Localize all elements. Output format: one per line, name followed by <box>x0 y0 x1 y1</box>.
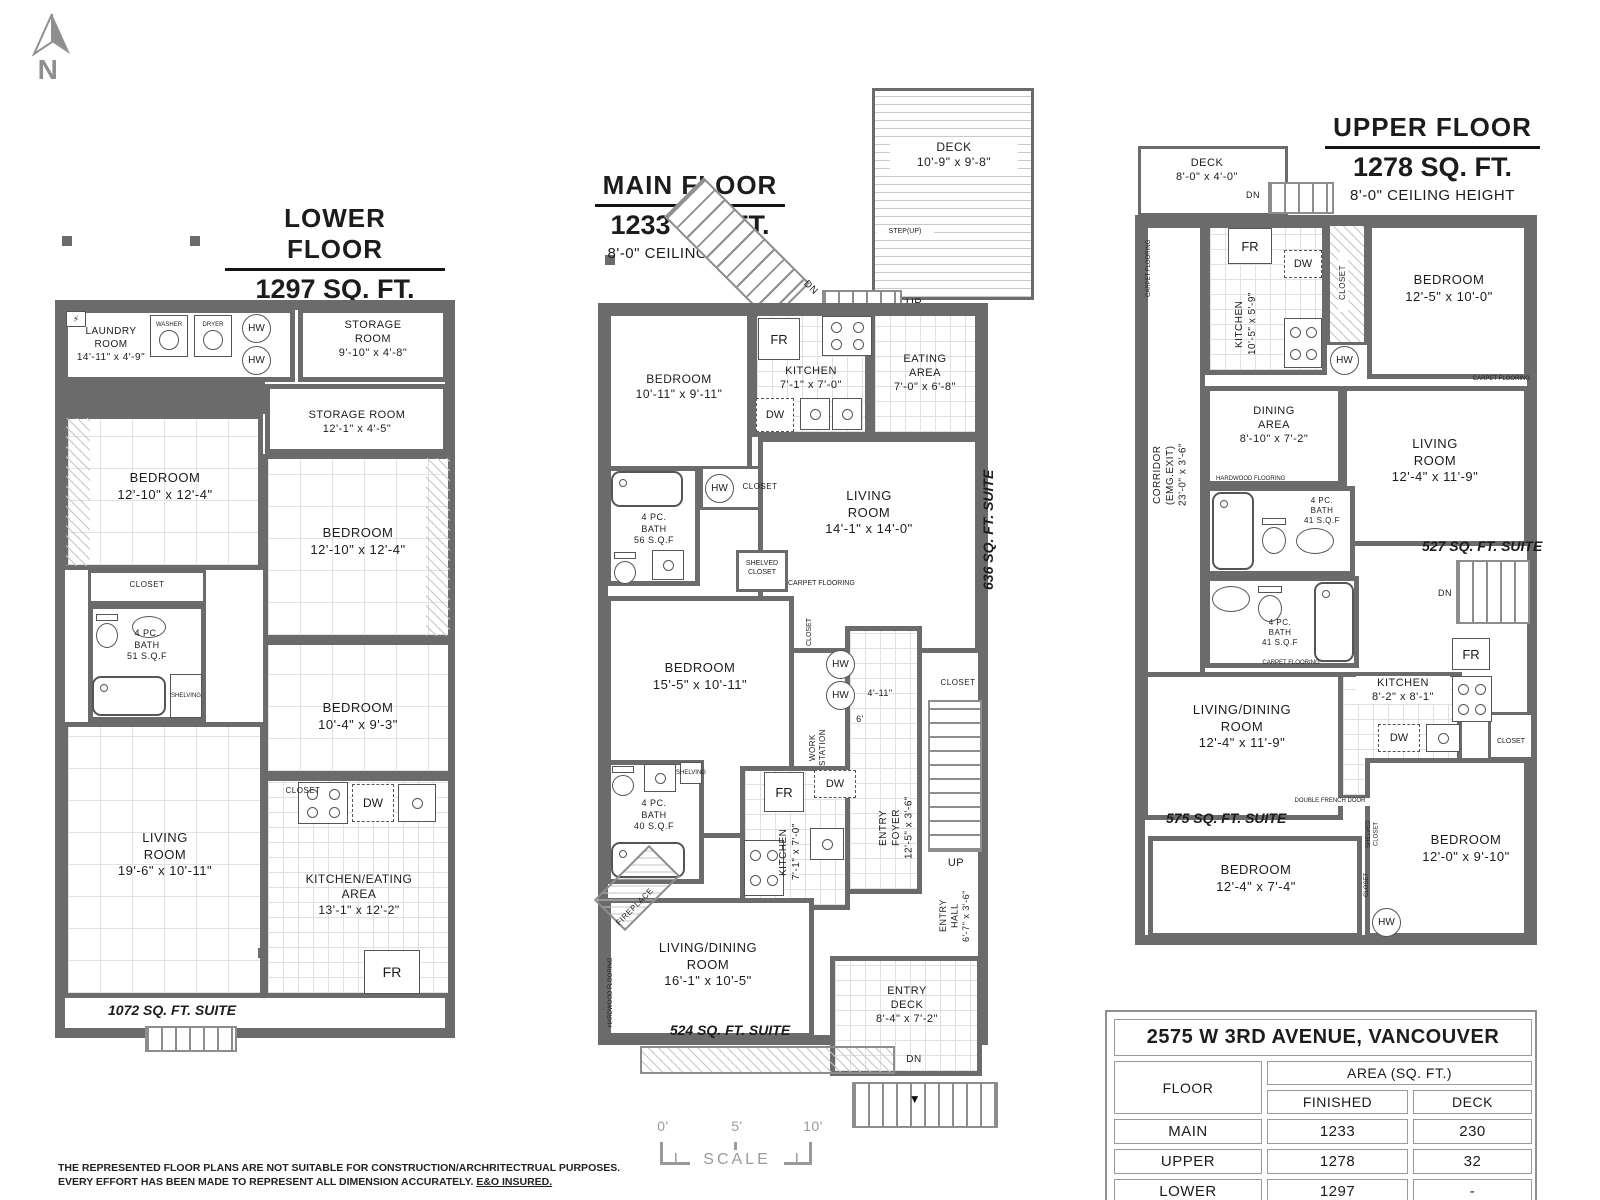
upper-dining-label: DINING AREA 8'-10" x 7'-2" <box>1218 404 1330 446</box>
upper-floor-area: 1278 SQ. FT. <box>1320 152 1545 183</box>
scale-label: SCALE <box>690 1150 784 1170</box>
upper-corridor-label: CORRIDOR (EMG.EXIT) 23'-0" x 3'-6" <box>1152 390 1190 560</box>
upper-floor-title-block: UPPER FLOOR 1278 SQ. FT. 8'-0" CEILING H… <box>1320 112 1545 204</box>
main-work-station-label: WORK STATION <box>808 718 828 778</box>
scale-major-tick <box>809 1142 812 1164</box>
hardwood-flooring-label: HARDWOOD FLOORING <box>608 952 616 1032</box>
fr-label: FR <box>1241 239 1258 254</box>
hw-label: HW <box>832 690 849 701</box>
sink-icon <box>652 550 684 580</box>
stove-icon <box>1284 318 1322 368</box>
washer-icon: WASHER <box>150 315 188 357</box>
lower-bedroom3-label: BEDROOM 10'-4" x 9'-3" <box>288 700 428 733</box>
upper-floor-ceiling: 8'-0" CEILING HEIGHT <box>1320 187 1545 204</box>
table-row-main-finished: 1233 <box>1267 1119 1408 1144</box>
main-bedroom2-label: BEDROOM 15'-5" x 10'-11" <box>630 660 770 693</box>
main-eating-label: EATING AREA 7'-0" x 6'-8" <box>880 352 970 394</box>
main-bedroom1-label: BEDROOM 10'-11" x 9'-11" <box>614 372 744 403</box>
toilet-icon <box>614 552 636 584</box>
upper-floor-title: UPPER FLOOR <box>1325 112 1540 149</box>
table-area-header: AREA (SQ. FT.) <box>1267 1061 1532 1085</box>
main-dim2-label: 6' <box>848 714 872 726</box>
lower-closet2-label: CLOSET <box>268 786 338 796</box>
disclaimer-line-2-text: EVERY EFFORT HAS BEEN MADE TO REPRESENT … <box>58 1176 473 1188</box>
hot-water-tank-icon: HW <box>826 681 855 710</box>
hw-label: HW <box>248 323 265 334</box>
upper-closet-label: CLOSET <box>1338 252 1348 312</box>
main-bath56-label: 4 PC. BATH 56 S.Q.F <box>622 512 686 547</box>
lower-floor-title: LOWER FLOOR <box>225 203 445 271</box>
upper-bedroom2-label: BEDROOM 12'-4" x 7'-4" <box>1186 862 1326 895</box>
scale-major-tick <box>660 1142 663 1164</box>
main-suite636-label: 636 SQ. FT. SUITE <box>980 470 998 590</box>
table-floor-header: FLOOR <box>1114 1061 1262 1114</box>
upper-deck-label: DECK 8'-0" x 4'-0" <box>1152 156 1262 184</box>
carpet-flooring-label: CARPET FLOORING <box>1246 660 1336 668</box>
lower-entry-steps <box>145 1026 237 1052</box>
upper-shelved-closet-label: SHELVED CLOSET <box>1366 808 1381 860</box>
washer-label: WASHER <box>156 322 182 328</box>
shelving-label: SHELVING <box>676 770 706 776</box>
main-closet-right-label: CLOSET <box>934 678 982 688</box>
table-title: 2575 W 3RD AVENUE, VANCOUVER <box>1114 1019 1532 1056</box>
bathtub-icon <box>92 676 166 716</box>
main-living-label: LIVING ROOM 14'-1" x 14'-0" <box>802 488 936 538</box>
main-dim1-label: 4'-11" <box>852 688 908 700</box>
electrical-panel-icon: ⚡ <box>66 311 86 327</box>
dw-label: DW <box>826 778 844 790</box>
bathtub-icon <box>1212 492 1254 570</box>
main-step-up-label: STEP(UP) <box>876 228 934 237</box>
table-row-main-floor: MAIN <box>1114 1119 1262 1144</box>
dishwasher-icon: DW <box>352 784 394 822</box>
lower-bath-label: 4 PC. BATH 51 S.Q.F <box>110 628 184 663</box>
main-entry-hall-label: ENTRY HALL 6'-7" x 3'-6" <box>938 872 973 960</box>
dishwasher-icon: DW <box>1284 250 1322 278</box>
disclaimer-line-2: EVERY EFFORT HAS BEEN MADE TO REPRESENT … <box>58 1176 552 1188</box>
toilet-tank <box>96 614 118 621</box>
toilet-icon <box>1262 518 1286 554</box>
main-deck-label: DECK 10'-9" x 9'-8" <box>890 140 1018 171</box>
fr-label: FR <box>775 785 792 800</box>
upper-dn2-label: DN <box>1432 588 1458 600</box>
main-up-stairs-label: UP <box>942 856 970 870</box>
dishwasher-icon: DW <box>1378 724 1420 752</box>
fridge-icon: FR <box>1228 228 1272 264</box>
main-closet-label: CLOSET <box>734 482 786 492</box>
lower-living-label: LIVING ROOM 19'-6" x 10'-11" <box>100 830 230 880</box>
table-row-lower-deck: - <box>1413 1179 1532 1200</box>
hot-water-tank-icon: HW <box>705 474 734 503</box>
electrical-glyph: ⚡ <box>73 314 79 325</box>
wall <box>63 382 265 414</box>
lower-laundry-label: LAUNDRY ROOM 14'-11" x 4'-9" <box>72 326 150 364</box>
upper-deck-stairs <box>1268 182 1334 214</box>
fridge-icon: FR <box>364 950 420 994</box>
main-bath40-label: 4 PC. BATH 40 S.Q.F <box>618 798 690 833</box>
disclaimer-eo-insured: E&O INSURED. <box>476 1176 552 1188</box>
hot-water-tank-icon: HW <box>1330 346 1359 375</box>
fr-label: FR <box>383 964 402 980</box>
sink-icon <box>1296 528 1334 554</box>
hw-label: HW <box>1336 355 1353 366</box>
bathtub-icon <box>611 471 683 507</box>
main-deck <box>872 88 1034 300</box>
kitchen-sink-icon <box>398 784 436 822</box>
hot-water-tank-icon: HW <box>826 650 855 679</box>
hw-label: HW <box>711 483 728 494</box>
fridge-icon: FR <box>758 318 800 360</box>
main-shelved-closet-label: SHELVED CLOSET <box>738 560 786 578</box>
table-row-lower-floor: LOWER <box>1114 1179 1262 1200</box>
scale-tick-10: 10' <box>796 1118 830 1136</box>
upper-living-label: LIVING ROOM 12'-4" x 11'-9" <box>1370 436 1500 486</box>
shelving-label: SHELVING <box>171 693 201 699</box>
table-row-main-deck: 230 <box>1413 1119 1532 1144</box>
kitchen-sink-icon <box>800 398 830 430</box>
carpet-flooring-label: CARPET FLOORING <box>1146 232 1154 304</box>
north-label: N <box>24 52 72 88</box>
dishwasher-icon: DW <box>756 398 794 432</box>
dw-label: DW <box>1390 732 1408 744</box>
table-row-upper-deck: 32 <box>1413 1149 1532 1174</box>
lower-bedroom1-label: BEDROOM 12'-10" x 12'-4" <box>95 470 235 503</box>
main-suite524-label: 524 SQ. FT. SUITE <box>660 1022 800 1040</box>
hot-water-tank-icon: HW <box>1372 908 1401 937</box>
scale-tick-5: 5' <box>722 1118 752 1136</box>
dryer-drum <box>203 330 223 350</box>
upper-bedroom1-label: BEDROOM 12'-5" x 10'-0" <box>1384 272 1514 305</box>
sink-icon <box>1212 586 1250 612</box>
upper-suite527-label: 527 SQ. FT. SUITE <box>1422 538 1537 556</box>
lower-storage1-label: STORAGE ROOM 9'-10" x 4'-8" <box>306 318 440 360</box>
table-row-upper-finished: 1278 <box>1267 1149 1408 1174</box>
lower-suite-label: 1072 SQ. FT. SUITE <box>108 1002 268 1020</box>
dw-label: DW <box>766 409 784 421</box>
table-finished-header: FINISHED <box>1267 1090 1408 1114</box>
stove-icon <box>822 316 872 356</box>
disclaimer-line-1: THE REPRESENTED FLOOR PLANS ARE NOT SUIT… <box>58 1162 620 1174</box>
upper-closet-right-label: CLOSET <box>1490 738 1532 747</box>
hot-water-tank-icon: HW <box>242 346 271 375</box>
main-livdin-label: LIVING/DINING ROOM 16'-1" x 10'-5" <box>638 940 778 990</box>
fridge-icon: FR <box>1452 638 1490 670</box>
porch-hatch <box>640 1046 895 1074</box>
upper-bedroom3-label: BEDROOM 12'-0" x 9'-10" <box>1396 832 1536 865</box>
area-summary-table: 2575 W 3RD AVENUE, VANCOUVER FLOOR AREA … <box>1105 1010 1537 1200</box>
hot-water-tank-icon: HW <box>242 314 271 343</box>
lower-kitchen-label: KITCHEN/EATING AREA 13'-1" x 12'-2" <box>283 872 435 918</box>
upper-livdin-label: LIVING/DINING ROOM 12'-4" x 11'-9" <box>1162 702 1322 752</box>
double-french-door-label: DOUBLE FRENCH DOOR <box>1290 798 1370 806</box>
table-row-upper-floor: UPPER <box>1114 1149 1262 1174</box>
bathtub-icon <box>1314 582 1354 662</box>
main-closet-vertical-label: CLOSET <box>806 606 815 658</box>
hw-label: HW <box>832 659 849 670</box>
toilet-icon <box>612 766 634 796</box>
kitchen-sink-icon <box>810 828 844 860</box>
post-marker <box>258 948 268 958</box>
upper-closet-v-label: CLOSET <box>1364 864 1372 906</box>
upper-suite575-label: 575 SQ. FT. SUITE <box>1166 810 1286 828</box>
upper-kitchen2-label: KITCHEN 8'-2" x 8'-1" <box>1356 676 1450 704</box>
column-marker <box>62 236 72 246</box>
main-kitchen2-label: KITCHEN 7'-1" x 7'-0" <box>778 806 804 898</box>
hw-label: HW <box>1378 917 1395 928</box>
dw-label: DW <box>1294 258 1312 270</box>
upper-bath2-label: 4 PC. BATH 41 S.Q.F <box>1252 618 1308 649</box>
dw-label: DW <box>363 796 383 810</box>
table-deck-header: DECK <box>1413 1090 1532 1114</box>
upper-kitchen1-label: KITCHEN 10'-5" x 5'-9" <box>1234 278 1260 370</box>
hw-label: HW <box>248 355 265 366</box>
dryer-icon: DRYER <box>194 315 232 357</box>
main-entry-deck-label: ENTRY DECK 8'-4" x 7'-2" <box>864 984 950 1026</box>
main-dn-entry-label: DN <box>900 1054 928 1067</box>
sink-icon <box>644 764 676 792</box>
shelving-unit: SHELVING <box>680 762 702 784</box>
wall-hatch <box>66 418 90 566</box>
stair-arrow: ▼ <box>900 1092 930 1107</box>
lower-bedroom2-label: BEDROOM 12'-10" x 12'-4" <box>278 525 438 558</box>
upper-closet-right <box>1488 712 1534 760</box>
lower-storage2-label: STORAGE ROOM 12'-1" x 4'-5" <box>275 408 439 436</box>
table-row-lower-finished: 1297 <box>1267 1179 1408 1200</box>
fr-label: FR <box>1462 647 1479 662</box>
carpet-flooring-label: CARPET FLOORING <box>788 580 878 589</box>
main-stairs-up <box>928 700 982 852</box>
kitchen-sink-icon <box>1426 724 1460 752</box>
fr-label: FR <box>770 332 787 347</box>
shelving-unit: SHELVING <box>170 674 202 718</box>
main-kitchen1-label: KITCHEN 7'-1" x 7'-0" <box>766 364 856 392</box>
scale-tick-0: 0' <box>648 1118 678 1136</box>
hardwood-flooring-label: HARDWOOD FLOORING <box>1216 476 1316 484</box>
carpet-flooring-label: CARPET FLOORING <box>1448 376 1530 384</box>
column-marker <box>190 236 200 246</box>
dryer-label: DRYER <box>203 322 224 328</box>
lower-closet1-label: CLOSET <box>100 580 194 590</box>
main-entry-foyer-label: ENTRY FOYER 12'-5" x 3'-6" <box>878 770 916 886</box>
floor-plan-sheet: N LOWER FLOOR 1297 SQ. FT. 7'-0" CEILING… <box>0 0 1600 1200</box>
kitchen-sink-icon <box>832 398 862 430</box>
upper-bath1-label: 4 PC. BATH 41 S.Q.F <box>1296 496 1348 527</box>
upper-dn-label: DN <box>1240 190 1266 202</box>
upper-stairs-down <box>1456 560 1530 624</box>
toilet-icon <box>1258 586 1282 622</box>
stove-icon <box>1452 676 1492 722</box>
washer-drum <box>159 330 179 350</box>
